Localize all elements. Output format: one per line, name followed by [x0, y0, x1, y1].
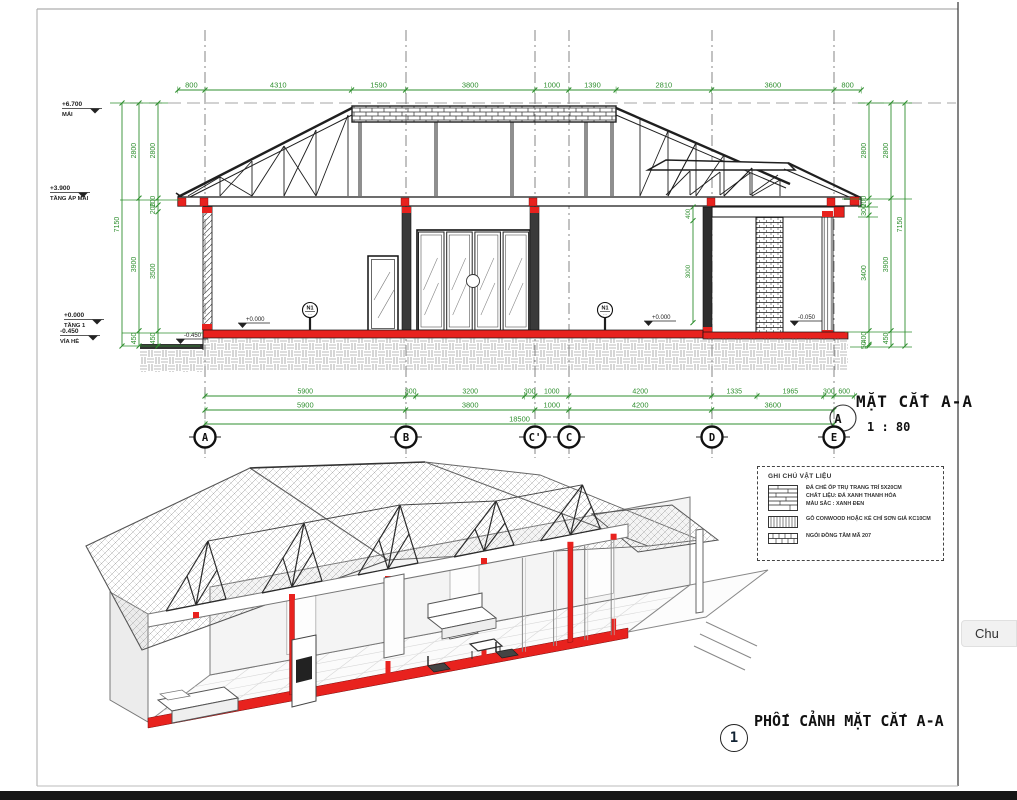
roof-section [176, 106, 861, 200]
legend-item-conwood: GỖ CONWOOD HOẶC KẺ CHỈ SƠN GIẢ KC10CM [768, 516, 935, 528]
dim-label: 1000 [543, 81, 560, 90]
dim-label: 4200 [632, 389, 648, 396]
legend-item-stone: ĐÁ CHẺ ỐP TRỤ TRANG TRÍ 5X20CM CHẤT LIỆU… [768, 485, 935, 511]
walls-and-doors [178, 197, 862, 336]
perspective-title-block: 1 PHỐI CẢNH MẶT CẮT A-A [720, 712, 944, 752]
dim-label: 2800 [861, 143, 868, 159]
dim-label: 4310 [270, 81, 287, 90]
grid-bubble-letter: A [202, 432, 209, 444]
dim-label: 3800 [462, 81, 479, 90]
dim-label: 300 [861, 204, 868, 216]
dim-label: 2800 [883, 143, 890, 159]
dim-label: 2800 [131, 143, 138, 159]
dim-label: 2810 [655, 81, 672, 90]
level-label: TẦNG ÁP MÁI [50, 195, 89, 202]
dim-label: 300 [405, 389, 417, 396]
dim-label: 5900 [298, 389, 314, 396]
dim-label: 50 [861, 341, 868, 349]
window-bottom-bar [0, 791, 1017, 800]
level-value: -0.050 [798, 315, 816, 321]
legend-item-tile: NGÓI ĐỒNG TÂM MÃ 207 [768, 533, 935, 544]
dim-label: 3000 [686, 264, 692, 278]
dim-label: 2800 [150, 143, 157, 159]
dim-label: 3900 [131, 257, 138, 273]
level-value: +6.700 [62, 101, 82, 108]
perspective-title: PHỐI CẢNH MẶT CẮT A-A [754, 712, 944, 730]
perspective-cutaway-view [86, 462, 768, 728]
partial-overlay-button[interactable]: Chu [961, 620, 1017, 647]
grid-bubble-letter: D [709, 432, 715, 444]
dim-label: 3500 [150, 263, 157, 279]
drawing-sheet: 8004310159038001000139028103600800590030… [0, 0, 1017, 800]
level-value: -0.450 [60, 328, 79, 335]
grid-bubble-letter: C' [529, 432, 542, 444]
dim-label: 5900 [297, 401, 314, 410]
dim-label: 3600 [764, 81, 781, 90]
dim-label: 3200 [462, 389, 478, 396]
grid-bubble-letter: E [831, 432, 837, 444]
legend-line: ĐÁ CHẺ ỐP TRỤ TRANG TRÍ 5X20CM [806, 485, 902, 493]
grid-bubble-letter: C [566, 432, 572, 444]
dim-label: 800 [841, 81, 854, 90]
grid-bubbles: AABC'CDE [189, 405, 856, 448]
dim-label: 3400 [861, 265, 868, 281]
dim-label: 3800 [462, 401, 479, 410]
view-number-bubble: 1 [720, 724, 748, 752]
dim-label: 1000 [543, 401, 560, 410]
legend-line: MÀU SẮC : XANH ĐEN [806, 501, 902, 509]
view-tag-letter: A [834, 412, 842, 426]
stone-hatch-swatch [768, 485, 798, 511]
legend-line: CHẤT LIỆU: ĐÁ XANH THANH HÓA [806, 493, 902, 501]
level-label: MÁI [62, 111, 73, 118]
legend-line: NGÓI ĐỒNG TÂM MÃ 207 [806, 533, 871, 541]
material-legend: GHI CHÚ VẬT LIỆU ĐÁ CHẺ ỐP TRỤ TRANG TRÍ… [757, 466, 944, 561]
tag-sub: ··· [308, 312, 312, 317]
tag-label: N1 [306, 306, 313, 312]
tag-label: N1 [601, 306, 608, 312]
grid-bubble-letter: B [403, 432, 409, 444]
level-value: -0.450 [184, 333, 202, 339]
section-title: MẶT CẮT A-A [856, 392, 973, 411]
floor-and-ground [140, 330, 848, 372]
dim-label: 300 [823, 389, 835, 396]
dim-label: 800 [185, 81, 198, 90]
dim-label: 1000 [544, 389, 560, 396]
roof-tile-swatch [768, 533, 798, 544]
dim-label: 1590 [370, 81, 387, 90]
wood-hatch-swatch [768, 516, 798, 528]
dim-label: 600 [838, 389, 850, 396]
level-value: +0.000 [64, 312, 84, 319]
roof-trusses [188, 115, 780, 196]
dim-label: 3600 [764, 401, 781, 410]
legend-title: GHI CHÚ VẬT LIỆU [768, 473, 935, 480]
section-scale: 1 : 80 [867, 420, 910, 434]
dim-label: 3900 [883, 257, 890, 273]
level-value: +0.000 [652, 315, 671, 321]
level-value: +3.900 [50, 185, 70, 192]
dim-label: 1390 [584, 81, 601, 90]
dim-label: 450 [131, 332, 138, 344]
dim-label: 200 [150, 202, 157, 214]
dim-label: 300 [524, 389, 536, 396]
dim-label: 1965 [783, 389, 799, 396]
dim-label: 18500 [509, 415, 530, 424]
dim-label: 7150 [114, 217, 121, 233]
dim-label: 450 [883, 332, 890, 344]
dim-label: 4200 [632, 401, 649, 410]
level-label: VỈA HÈ [60, 337, 79, 345]
level-value: +0.000 [246, 317, 265, 323]
tag-sub: ··· [603, 312, 607, 317]
dim-label: 450 [150, 332, 157, 344]
dim-label: 1335 [727, 389, 743, 396]
legend-line: GỖ CONWOOD HOẶC KẺ CHỈ SƠN GIẢ KC10CM [806, 516, 931, 524]
dim-label: 7150 [897, 217, 904, 233]
dim-label: 400 [686, 208, 692, 219]
